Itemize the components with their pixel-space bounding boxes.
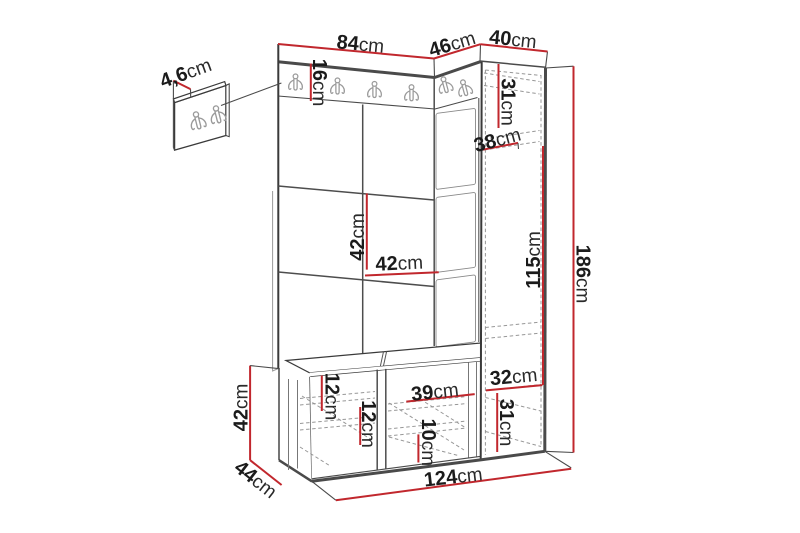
- svg-text:10cm: 10cm: [417, 419, 439, 467]
- svg-text:42cm: 42cm: [347, 213, 369, 261]
- svg-text:186cm: 186cm: [572, 245, 594, 304]
- svg-text:12cm: 12cm: [321, 373, 343, 421]
- svg-text:42cm: 42cm: [375, 252, 424, 276]
- svg-text:16cm: 16cm: [308, 59, 330, 107]
- svg-text:31cm: 31cm: [495, 399, 517, 447]
- svg-text:42cm: 42cm: [231, 384, 253, 432]
- svg-text:32cm: 32cm: [489, 364, 538, 390]
- svg-text:31cm: 31cm: [497, 78, 519, 126]
- svg-text:84cm: 84cm: [336, 31, 385, 57]
- svg-text:115cm: 115cm: [523, 231, 545, 289]
- svg-text:12cm: 12cm: [357, 400, 379, 448]
